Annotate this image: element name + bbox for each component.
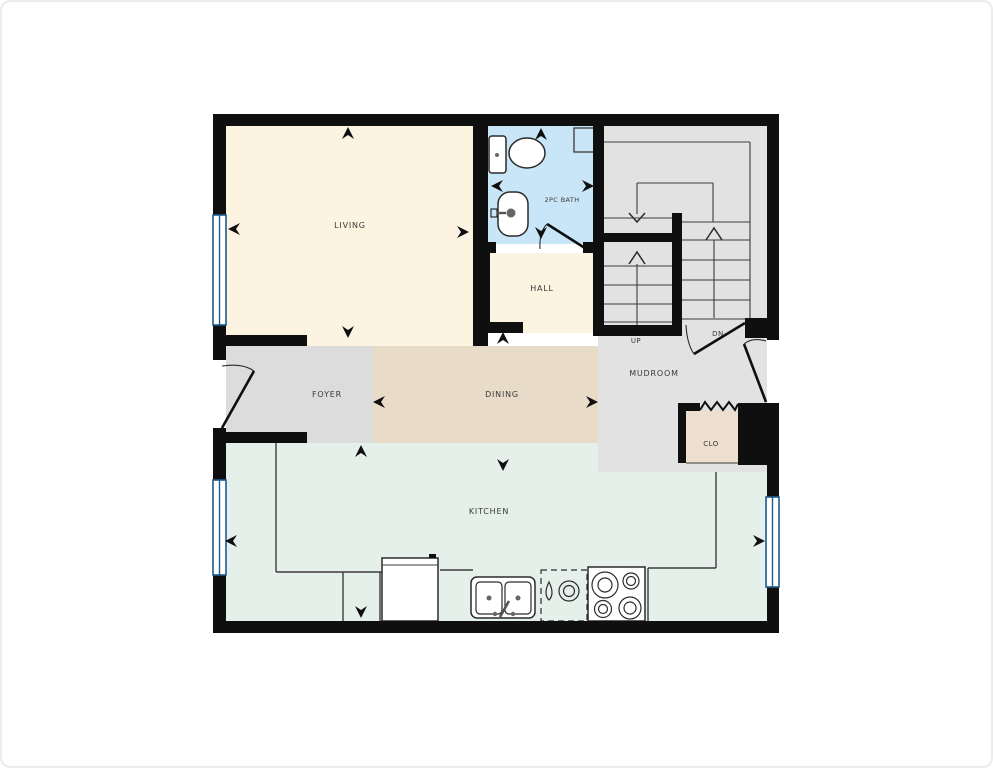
wall-right-2 (767, 465, 779, 497)
wall-stair-se-block (745, 318, 767, 338)
arrow-up-hall-icon (497, 332, 509, 344)
wall-hall-south (479, 322, 523, 333)
wall-left-1 (213, 114, 226, 215)
wall-closet-left (678, 403, 686, 463)
stairs-dn-label: DN (712, 330, 724, 338)
wall-hall-left (479, 242, 490, 333)
wall-living-foyer (213, 335, 307, 346)
dining-label: DINING (485, 390, 519, 399)
floor-plan-canvas: LIVING 2PC BATH HALL FOYER DINING MUDROO… (0, 0, 993, 768)
sink-tap-right (511, 612, 515, 616)
foyer-label: FOYER (312, 390, 342, 399)
sink-tap-left (493, 612, 497, 616)
wall-top (213, 114, 779, 126)
wall-closet-right-block (738, 403, 779, 465)
kitchen-label: KITCHEN (469, 507, 509, 516)
living-room-floor (226, 126, 474, 346)
wall-stair-center (672, 213, 682, 336)
bath-faucet-knob (507, 209, 516, 218)
foyer-floor (226, 346, 373, 443)
wall-bath-stairs (593, 114, 604, 336)
toilet-tank-button (495, 153, 499, 157)
sink-drain-left (487, 596, 492, 601)
wall-bottom (213, 621, 779, 633)
floor-plan: LIVING 2PC BATH HALL FOYER DINING MUDROO… (0, 0, 993, 768)
refrigerator-handle (429, 554, 436, 558)
hall-label: HALL (530, 284, 554, 293)
closet-label: CLO (703, 440, 719, 448)
bath-label: 2PC BATH (544, 196, 579, 204)
closet-floor (686, 411, 738, 463)
stairs-up-label: UP (631, 337, 641, 345)
hall-floor (490, 253, 593, 333)
sink-drain-right (516, 596, 521, 601)
wall-stair-south (593, 325, 682, 336)
wall-right-3 (767, 587, 779, 633)
wall-right-1 (767, 114, 779, 340)
mudroom-label: MUDROOM (629, 369, 679, 378)
wall-left-4 (213, 575, 226, 633)
refrigerator (382, 558, 438, 621)
wall-stair-landing (593, 233, 672, 242)
room-floors (226, 126, 767, 621)
living-label: LIVING (334, 221, 366, 230)
wall-foyer-kitchen (213, 432, 307, 443)
toilet-bowl (509, 138, 545, 168)
